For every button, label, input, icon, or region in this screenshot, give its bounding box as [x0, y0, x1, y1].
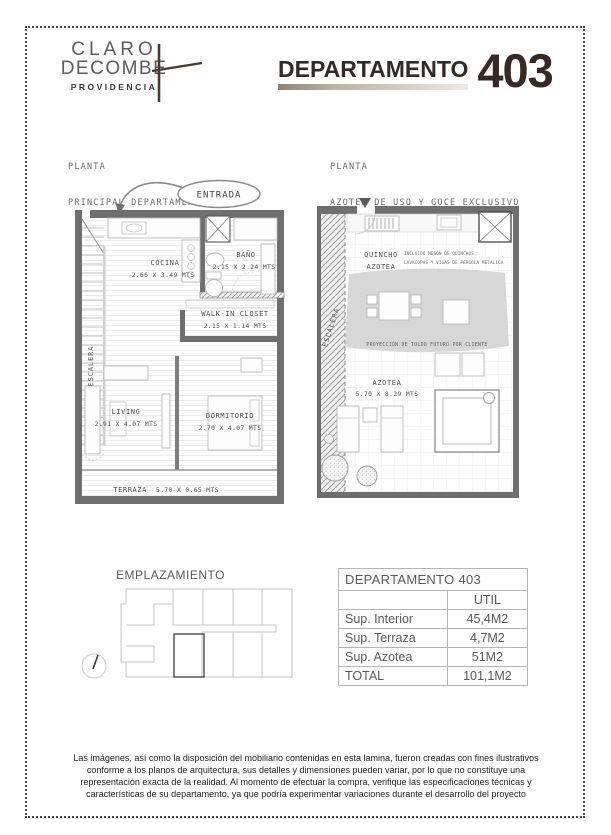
site-plan [116, 586, 296, 681]
walkin-dims: 2.15 X 1.14 MTS [204, 323, 267, 330]
left-escalera-label: ESCALERA [87, 346, 95, 387]
disclaimer-text: Las imágenes, así como la disposición de… [62, 752, 550, 800]
table-row: TOTAL 101,1M2 [339, 667, 528, 686]
unit-number: 403 [477, 49, 552, 93]
living-dims: 2.91 X 4.07 MTS [95, 421, 158, 428]
table-header-row: UTIL [339, 591, 528, 610]
table-row: Sup. Terraza 4,7M2 [339, 629, 528, 648]
living-label: LIVING [112, 408, 141, 416]
surfaces-table: DEPARTAMENTO 403 UTIL Sup. Interior 45,4… [338, 568, 528, 686]
main-floor-plan: ESCALERA COCINA [74, 206, 286, 506]
table-row: Sup. Interior 45,4M2 [339, 610, 528, 629]
quincho-label-line2: AZOTEA [367, 263, 396, 271]
row-label: Sup. Terraza [339, 629, 448, 648]
row-value: 4,7M2 [447, 629, 527, 648]
row-value: 101,1M2 [447, 667, 527, 686]
quincho-note-line2: LAVACOPAS Y VIGAS DE PERGOLA METALICA [404, 260, 504, 266]
bano-dims: 2.15 X 2.24 MTS [213, 264, 276, 271]
row-label: Sup. Interior [339, 610, 448, 629]
highlighted-unit [174, 634, 204, 677]
cocina-dims: 2.66 X 3.49 MTS [132, 272, 195, 279]
util-column-header: UTIL [447, 591, 527, 610]
table-title: DEPARTAMENTO 403 [339, 569, 528, 591]
entrada-label: ENTRADA [197, 191, 242, 201]
azotea-label: AZOTEA [373, 379, 402, 387]
jacuzzi [435, 390, 499, 452]
walkin-label: WALK-IN CLOSET [201, 310, 269, 318]
right-plan-heading-line1: PLANTA [330, 161, 520, 173]
page-title: DEPARTAMENTO 403 [278, 49, 553, 93]
bano-label: BAÑO [236, 250, 255, 259]
row-value: 51M2 [447, 648, 527, 667]
quincho-note-line1: INCLUIDO MESÓN DE QUINCHOS, [404, 250, 477, 257]
terraza-dims: 5.70 X 0.65 MTS [156, 487, 219, 494]
emplazamiento-heading: EMPLAZAMIENTO [116, 568, 225, 582]
logo-mark-icon [150, 42, 208, 106]
terraza-label: TERRAZA [113, 486, 147, 494]
rooftop-lounge-bench [435, 353, 484, 376]
cocina-label: COCINA [151, 259, 180, 267]
table-title-row: DEPARTAMENTO 403 [339, 569, 528, 591]
azotea-dims: 5.70 X 8.29 MTS [356, 391, 419, 398]
toldo-note: PROYECCIÓN DE TOLDO FUTURO POR CLIENTE [366, 341, 487, 348]
dormitorio-dims: 2.70 X 4.07 MTS [199, 425, 262, 432]
dormitorio-label: DORMITORIO [206, 412, 254, 420]
row-label: TOTAL [339, 667, 448, 686]
north-indicator-icon [80, 652, 108, 680]
row-value: 45,4M2 [447, 610, 527, 629]
title-label-block: DEPARTAMENTO [278, 57, 468, 90]
title-underline [278, 84, 468, 90]
table-row: Sup. Azotea 51M2 [339, 648, 528, 667]
title-label: DEPARTAMENTO [278, 57, 468, 81]
wood-floor [82, 218, 277, 496]
empty-header-cell [339, 591, 448, 610]
row-label: Sup. Azotea [339, 648, 448, 667]
quincho-label-line1: QUINCHO [364, 251, 398, 259]
left-plan-heading-line1: PLANTA [68, 161, 207, 173]
rooftop-plan: ESCALERA [317, 206, 522, 506]
